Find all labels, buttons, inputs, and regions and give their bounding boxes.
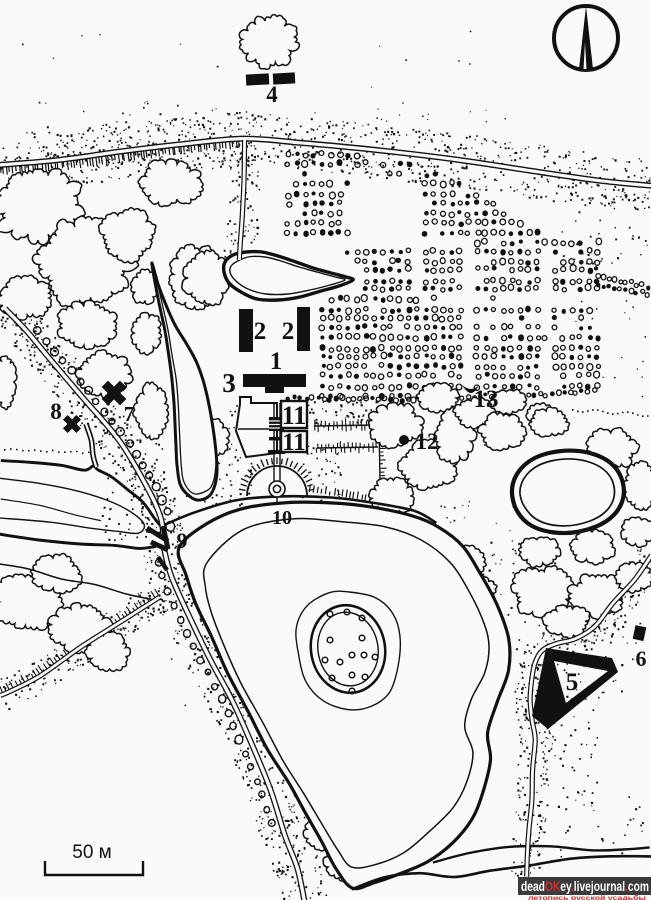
svg-text:8: 8 — [50, 399, 62, 424]
svg-text:7: 7 — [124, 402, 135, 426]
svg-text:3: 3 — [222, 368, 236, 398]
svg-text:11: 11 — [282, 429, 306, 456]
svg-text:9: 9 — [177, 528, 188, 553]
svg-text:13: 13 — [474, 386, 499, 413]
svg-text:6: 6 — [636, 646, 647, 671]
svg-text:летопись русской усадьбы: летопись русской усадьбы — [528, 894, 646, 900]
svg-text:12: 12 — [416, 429, 439, 454]
svg-text:2: 2 — [282, 318, 295, 345]
svg-text:4: 4 — [266, 82, 278, 107]
svg-text:deadOKey.livejournal.com: deadOKey.livejournal.com — [521, 879, 649, 894]
svg-text:10: 10 — [272, 507, 292, 529]
svg-text:50 м: 50 м — [72, 842, 111, 863]
svg-text:1: 1 — [270, 348, 283, 375]
svg-text:11: 11 — [282, 401, 307, 430]
svg-text:2: 2 — [254, 318, 267, 345]
svg-text:5: 5 — [566, 669, 579, 696]
